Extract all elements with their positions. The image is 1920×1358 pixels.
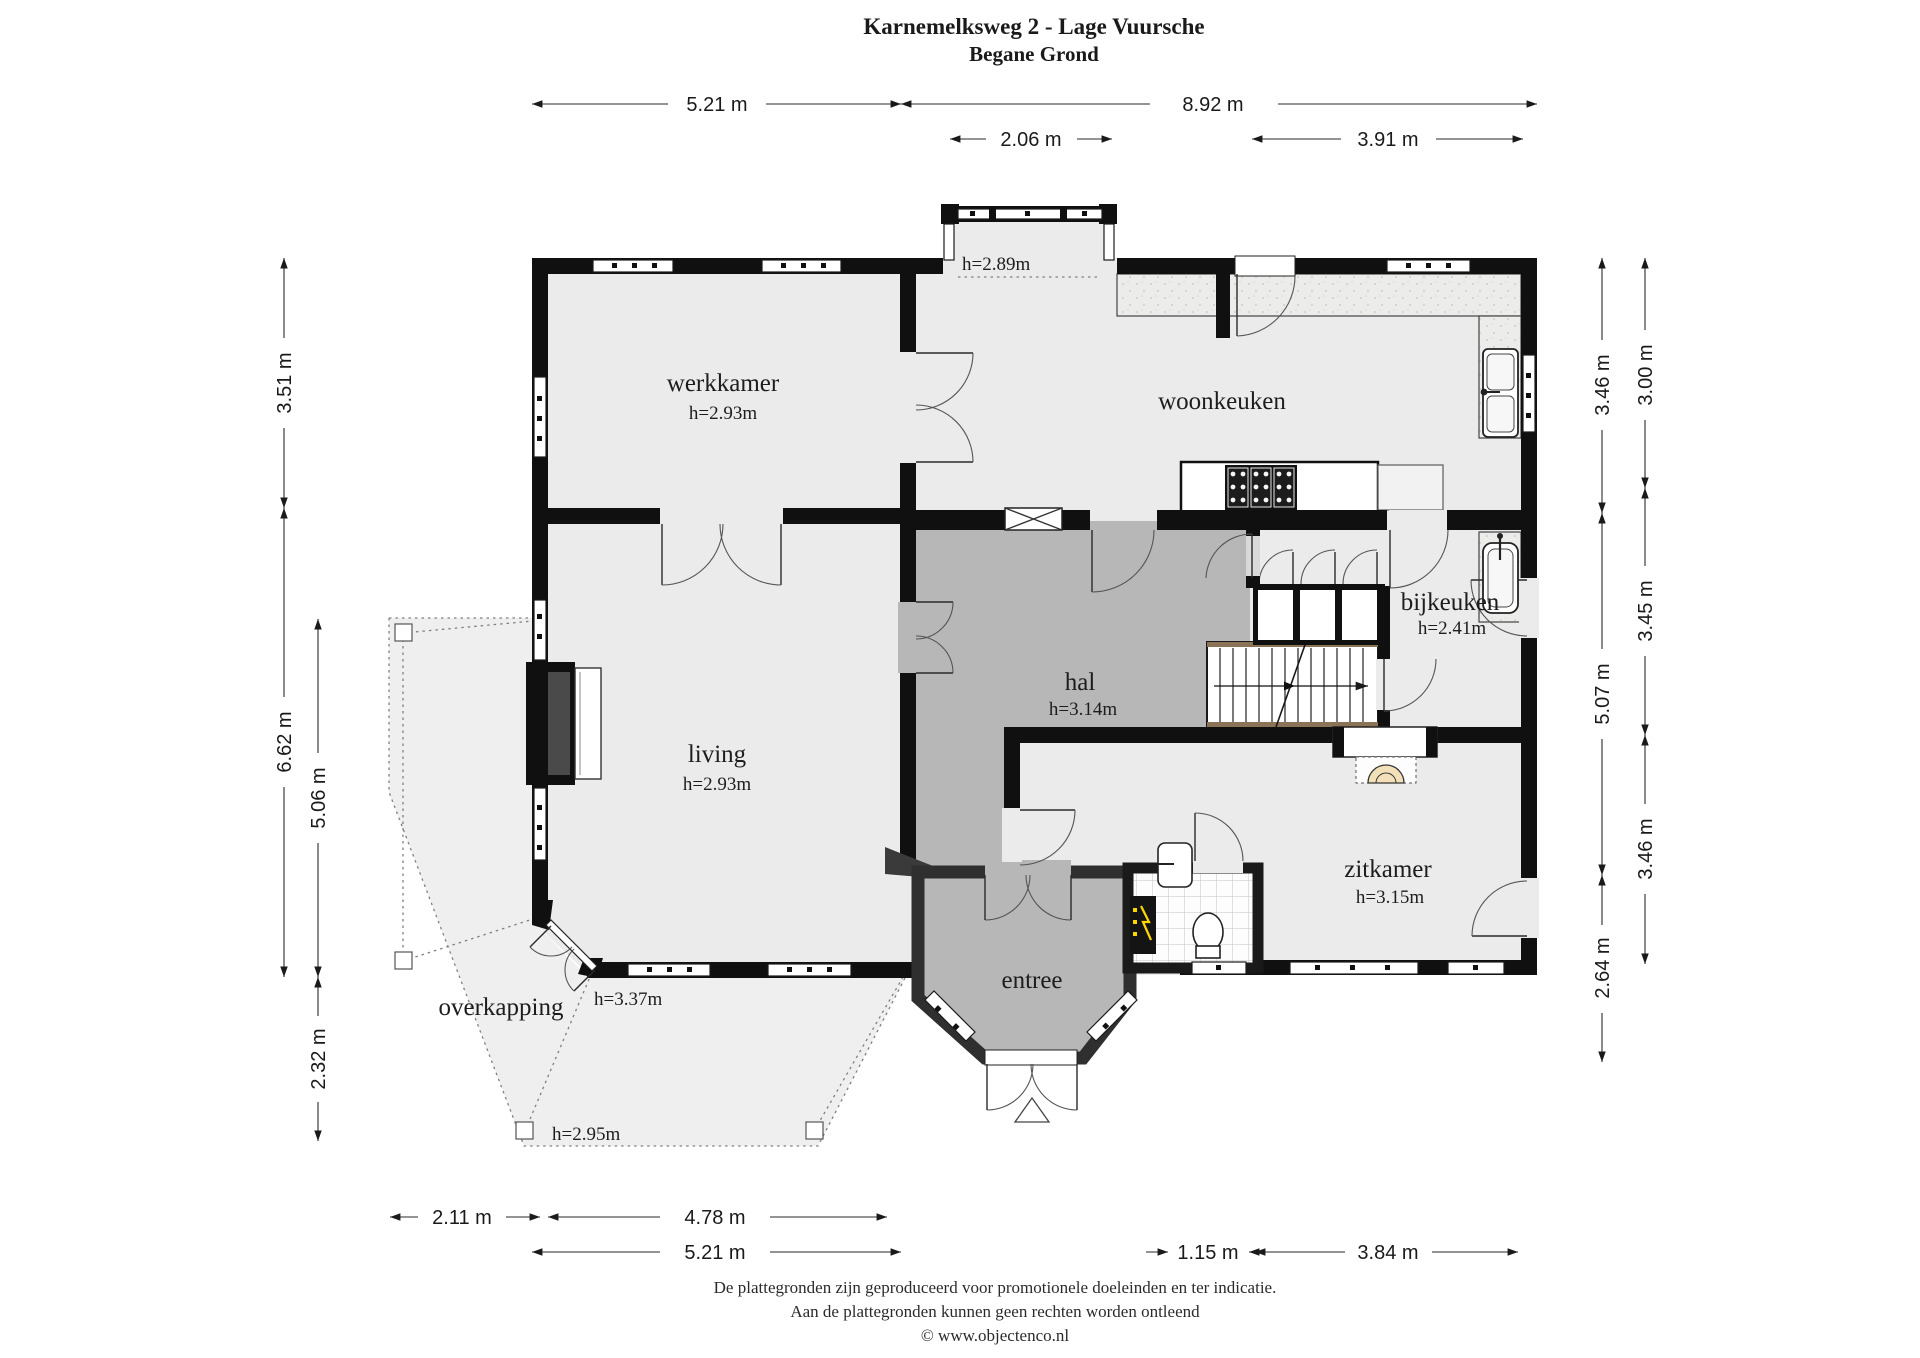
meter-cabinet [1130, 896, 1156, 954]
dim-right-346b: 3.46 m [1635, 818, 1657, 879]
toilet-tank [1196, 946, 1220, 958]
room-height-zitkamer: h=3.15m [1356, 887, 1424, 908]
dim-bottom-115: 1.15 m [1177, 1242, 1238, 1264]
dim-right-346a: 3.46 m [1592, 354, 1614, 415]
dim-top-391: 3.91 m [1357, 129, 1418, 151]
footer: De plattegronden zijn geproduceerd voor … [714, 1278, 1277, 1345]
dim-top-892: 8.92 m [1182, 94, 1243, 116]
dim-left-506: 5.06 m [308, 767, 330, 828]
terrace-post [395, 952, 412, 969]
room-height-bijkeuken: h=2.41m [1418, 618, 1486, 639]
page-title: Karnemelksweg 2 - Lage Vuursche [863, 14, 1204, 39]
room-label-hal: hal [1065, 669, 1096, 696]
height-label-terrace-door: h=3.37m [594, 989, 662, 1010]
room-label-zitkamer: zitkamer [1344, 856, 1432, 883]
dim-left-662: 6.62 m [274, 711, 296, 772]
dim-right-345: 3.45 m [1635, 580, 1657, 641]
fireplace [526, 662, 601, 785]
height-label-bay: h=2.89m [962, 254, 1030, 275]
room-label-living: living [688, 741, 747, 768]
room-label-werkkamer: werkkamer [667, 370, 780, 397]
staircase [1207, 642, 1378, 727]
room-label-bijkeuken: bijkeuken [1401, 589, 1500, 616]
height-label-overkapping: h=2.95m [552, 1124, 620, 1145]
room-label-entree: entree [1001, 967, 1062, 994]
dim-bottom-211: 2.11 m [432, 1207, 492, 1229]
dim-right-507: 5.07 m [1592, 663, 1614, 724]
transom-window [1005, 508, 1062, 530]
room-height-living: h=2.93m [683, 774, 751, 795]
terrace-post [395, 624, 412, 641]
hob [1225, 465, 1297, 510]
room-label-woonkeuken: woonkeuken [1158, 388, 1286, 415]
room-height-hal: h=3.14m [1049, 699, 1117, 720]
island-unit [1378, 465, 1443, 510]
dim-right-264: 2.64 m [1592, 937, 1614, 998]
floorplan-page: Karnemelksweg 2 - Lage Vuursche Begane G… [0, 0, 1920, 1358]
terrace-post [806, 1122, 823, 1139]
page-subtitle: Begane Grond [969, 42, 1099, 66]
room-height-werkkamer: h=2.93m [689, 403, 757, 424]
kitchen-counter-top [1117, 274, 1521, 316]
dim-left-351: 3.51 m [274, 352, 296, 413]
kitchen-sink [1481, 349, 1518, 437]
dim-left-232: 2.32 m [308, 1028, 330, 1089]
entree-hal-opening [985, 860, 1071, 882]
dim-bottom-521: 5.21 m [684, 1242, 745, 1264]
dim-bottom-478: 4.78 m [684, 1207, 745, 1229]
front-door-opening [985, 1050, 1077, 1065]
entrance-marker [1015, 1098, 1049, 1122]
toilet-door-opening [1193, 859, 1243, 873]
dim-right-300: 3.00 m [1635, 344, 1657, 405]
footer-line-2: Aan de plattegronden kunnen geen rechten… [790, 1302, 1200, 1321]
footer-line-1: De plattegronden zijn geproduceerd voor … [714, 1278, 1277, 1297]
terrace-post [516, 1122, 533, 1139]
footer-copyright: © www.objectenco.nl [921, 1326, 1070, 1345]
room-label-overkapping: overkapping [439, 994, 564, 1021]
dim-top-521: 5.21 m [686, 94, 747, 116]
floorplan-drawing: Karnemelksweg 2 - Lage Vuursche Begane G… [0, 0, 1920, 1358]
dim-top-206: 2.06 m [1000, 129, 1061, 151]
dim-bottom-384: 3.84 m [1357, 1242, 1418, 1264]
